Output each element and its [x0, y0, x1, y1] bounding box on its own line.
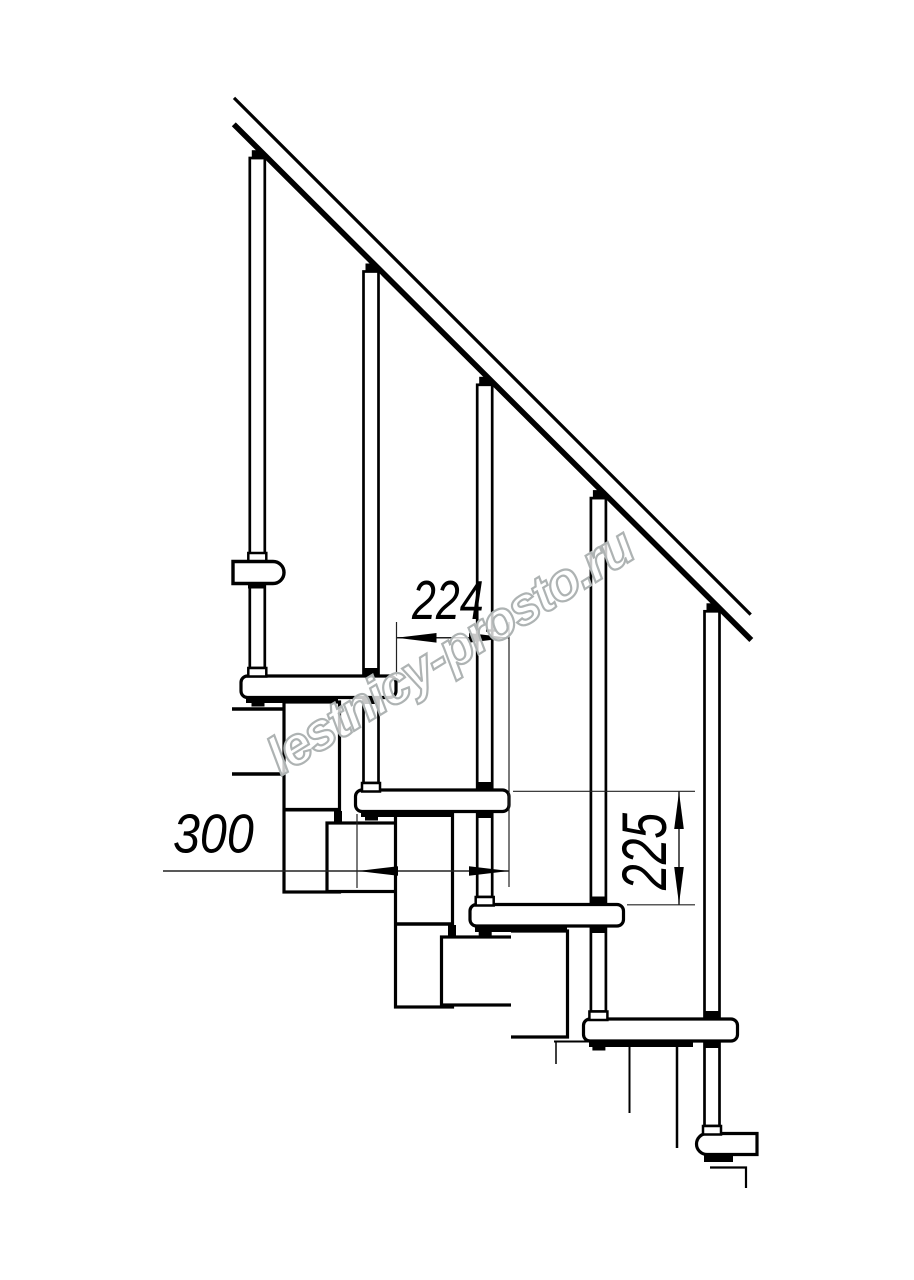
svg-text:300: 300 — [173, 803, 254, 865]
svg-text:225: 225 — [609, 813, 680, 891]
